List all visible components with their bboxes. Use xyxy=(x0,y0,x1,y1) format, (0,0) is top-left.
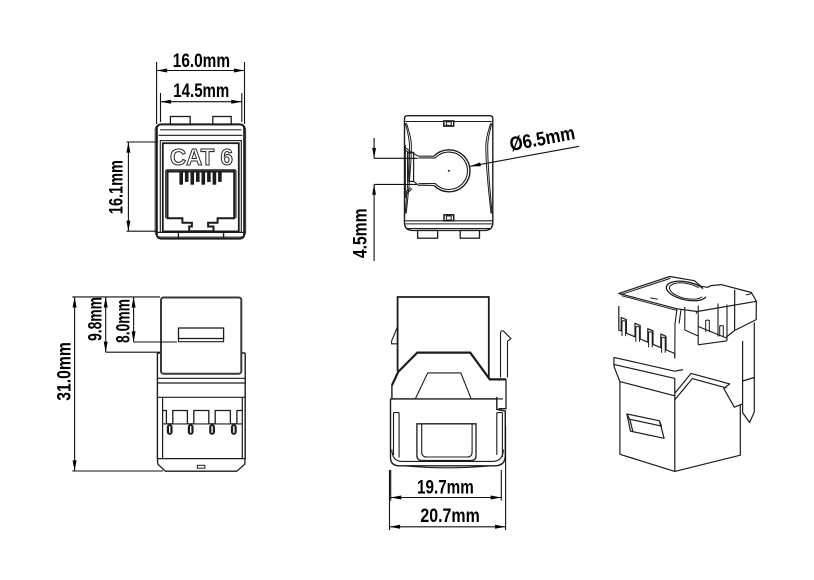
svg-text:4.5mm: 4.5mm xyxy=(350,209,372,259)
svg-text:16.0mm: 16.0mm xyxy=(173,50,230,72)
svg-text:16.1mm: 16.1mm xyxy=(106,160,128,214)
svg-text:9.8mm: 9.8mm xyxy=(85,297,107,341)
svg-text:19.7mm: 19.7mm xyxy=(417,477,474,499)
svg-text:14.5mm: 14.5mm xyxy=(173,80,229,102)
svg-text:8.0mm: 8.0mm xyxy=(112,299,134,343)
svg-text:31.0mm: 31.0mm xyxy=(54,342,76,401)
svg-text:CAT 6: CAT 6 xyxy=(170,144,233,170)
svg-text:Ø6.5mm: Ø6.5mm xyxy=(508,122,577,156)
svg-text:20.7mm: 20.7mm xyxy=(420,505,479,527)
